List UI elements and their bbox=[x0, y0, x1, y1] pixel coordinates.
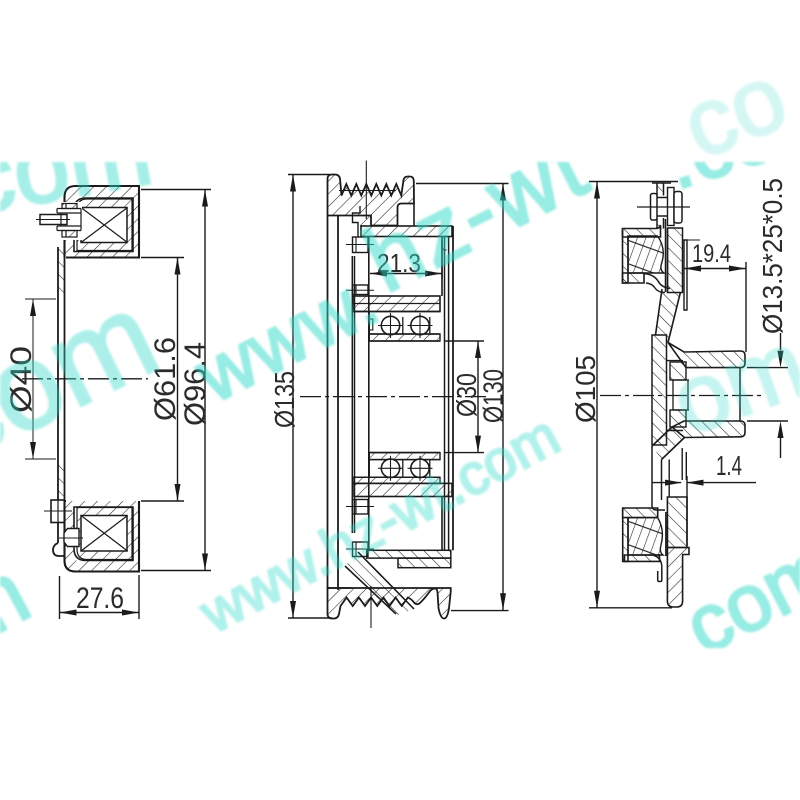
svg-text:27.6: 27.6 bbox=[76, 582, 124, 615]
svg-text:1.4: 1.4 bbox=[716, 450, 742, 481]
svg-text:19.4: 19.4 bbox=[692, 240, 731, 268]
svg-text:Ø13.5*25*0.5: Ø13.5*25*0.5 bbox=[757, 178, 788, 334]
svg-text:Ø105: Ø105 bbox=[570, 355, 601, 423]
svg-text:Ø130: Ø130 bbox=[478, 369, 509, 423]
